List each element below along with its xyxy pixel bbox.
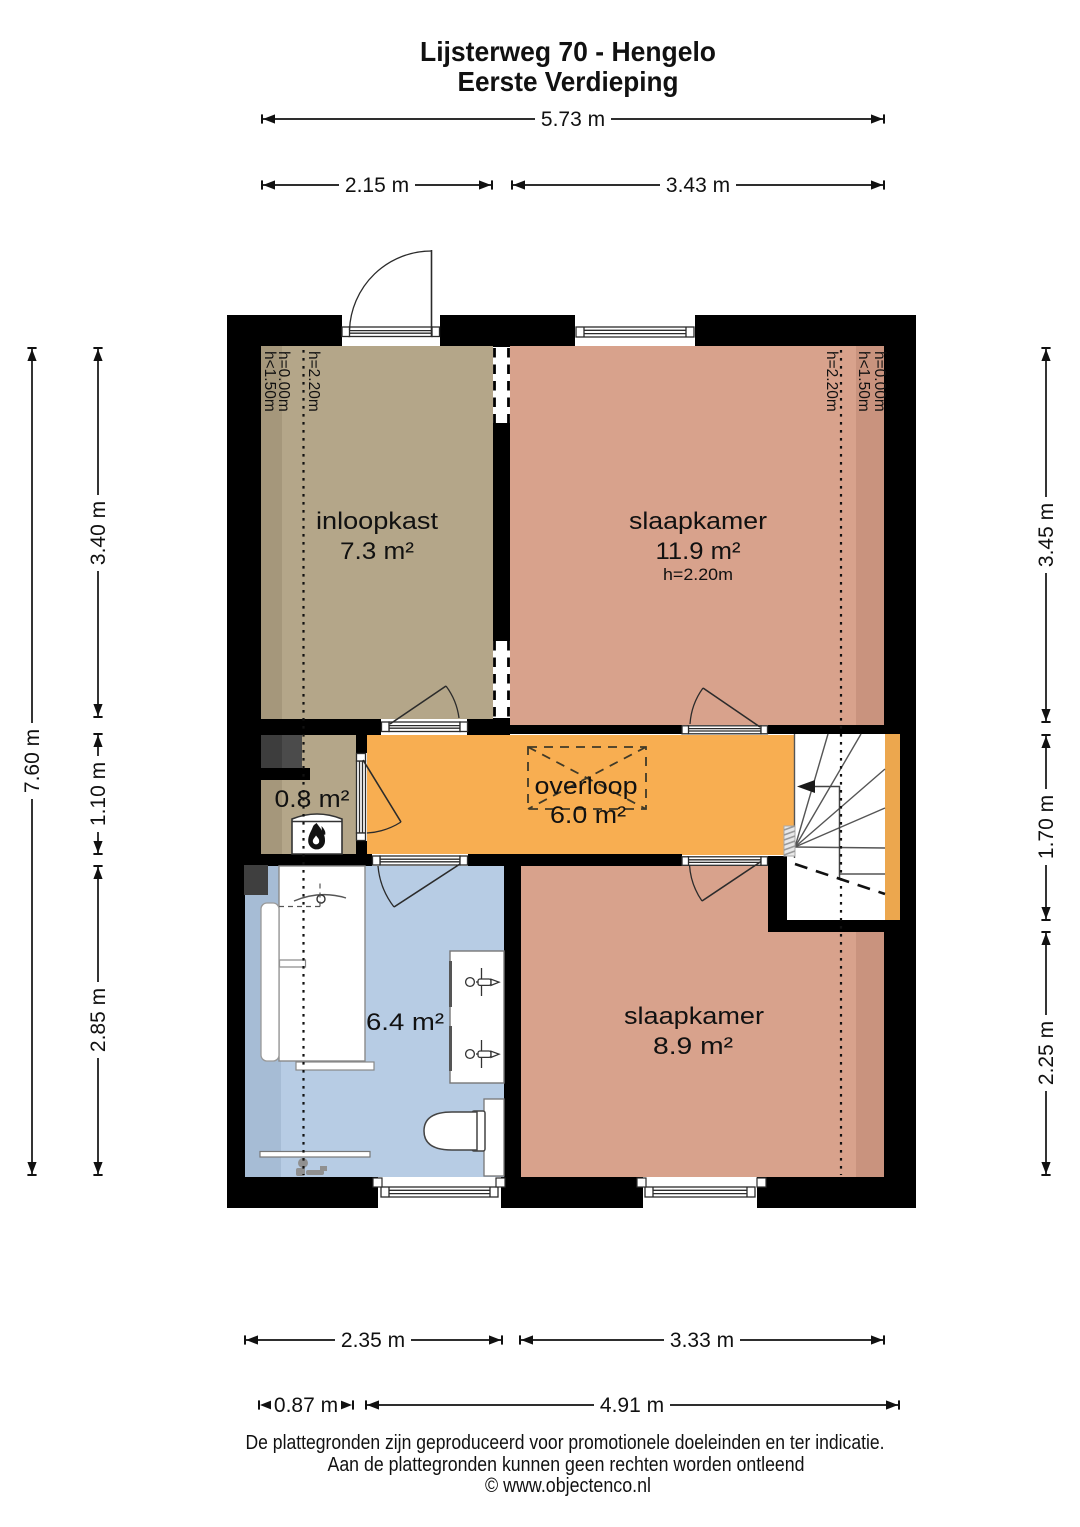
svg-text:3.33 m: 3.33 m [670, 1329, 734, 1352]
svg-text:slaapkamer: slaapkamer [629, 508, 767, 535]
svg-text:Aan de plattegronden kunnen ge: Aan de plattegronden kunnen geen rechten… [328, 1454, 805, 1476]
svg-text:5.73 m: 5.73 m [541, 108, 605, 131]
svg-text:overloop: overloop [535, 773, 638, 800]
svg-text:2.25 m: 2.25 m [1035, 1021, 1058, 1085]
svg-text:Eerste Verdieping: Eerste Verdieping [458, 66, 679, 97]
svg-text:3.45 m: 3.45 m [1035, 503, 1058, 567]
svg-text:4.91 m: 4.91 m [600, 1394, 664, 1417]
svg-text:6.4 m²: 6.4 m² [366, 1009, 444, 1036]
svg-text:h=2.20m: h=2.20m [305, 351, 322, 412]
svg-text:11.9 m²: 11.9 m² [656, 538, 741, 565]
svg-text:7.60 m: 7.60 m [21, 729, 44, 793]
svg-text:h=0.00m: h=0.00m [871, 351, 888, 412]
svg-text:1.10 m: 1.10 m [87, 762, 110, 826]
svg-text:3.40 m: 3.40 m [87, 501, 110, 565]
svg-text:0.87 m: 0.87 m [274, 1394, 338, 1417]
svg-text:© www.objectenco.nl: © www.objectenco.nl [485, 1475, 651, 1497]
svg-text:slaapkamer: slaapkamer [624, 1003, 764, 1030]
svg-text:2.35 m: 2.35 m [341, 1329, 405, 1352]
svg-text:0.8 m²: 0.8 m² [275, 786, 350, 813]
svg-text:2.85 m: 2.85 m [87, 988, 110, 1052]
svg-text:h<1.50m: h<1.50m [855, 351, 872, 412]
svg-text:6.0 m²: 6.0 m² [550, 802, 626, 829]
svg-text:h=2.20m: h=2.20m [823, 351, 840, 412]
svg-text:h=2.20m: h=2.20m [663, 565, 733, 584]
svg-text:De plattegronden zijn geproduc: De plattegronden zijn geproduceerd voor … [246, 1432, 885, 1454]
svg-text:3.43 m: 3.43 m [666, 174, 730, 197]
svg-text:7.3 m²: 7.3 m² [340, 538, 414, 565]
svg-text:2.15 m: 2.15 m [345, 174, 409, 197]
svg-text:Lijsterweg 70 - Hengelo: Lijsterweg 70 - Hengelo [420, 36, 716, 67]
svg-text:inloopkast: inloopkast [316, 508, 438, 535]
svg-text:1.70 m: 1.70 m [1035, 795, 1058, 859]
svg-text:h=0.00m: h=0.00m [275, 351, 292, 412]
svg-text:8.9 m²: 8.9 m² [653, 1033, 733, 1060]
